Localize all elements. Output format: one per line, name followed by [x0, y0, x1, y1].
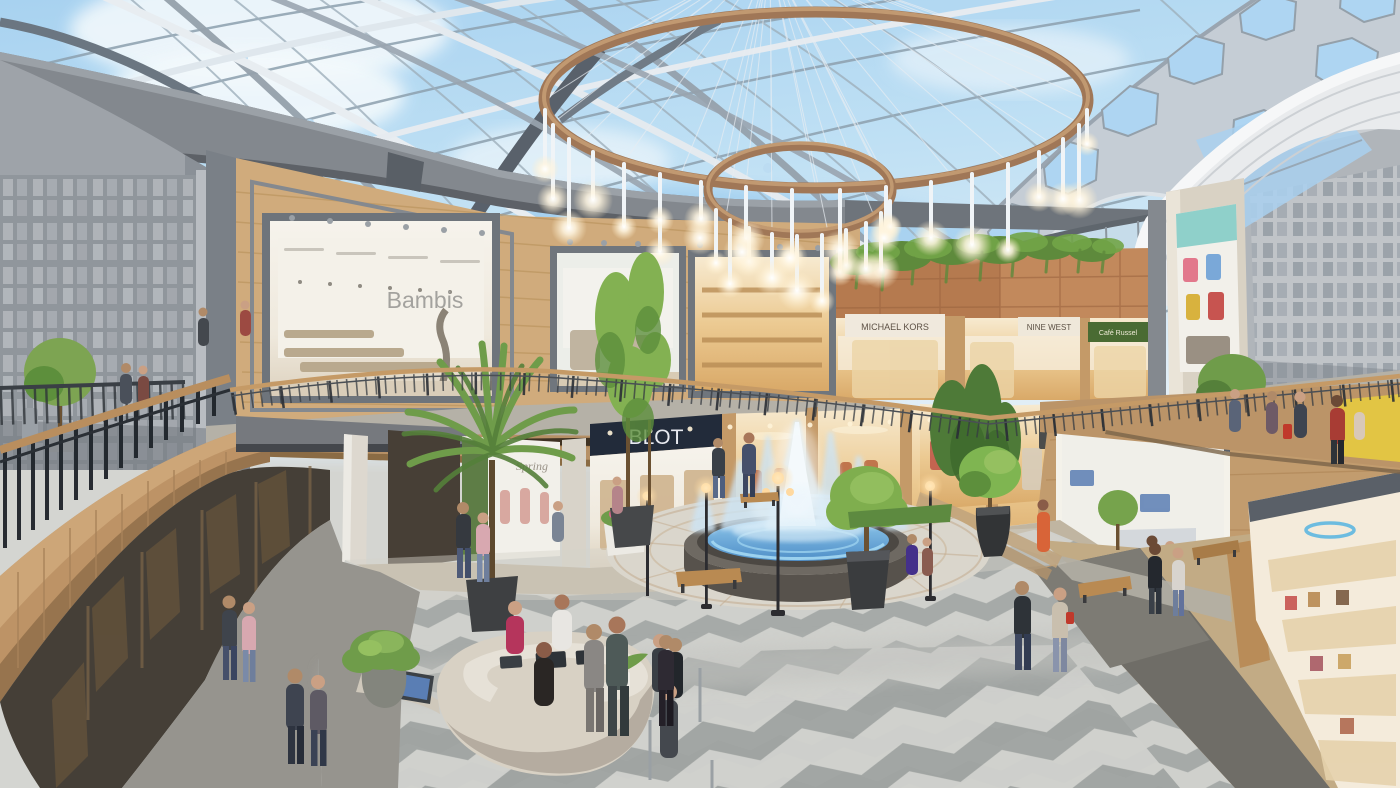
- svg-text:MICHAEL KORS: MICHAEL KORS: [861, 322, 929, 332]
- svg-text:Café Russel: Café Russel: [1099, 330, 1138, 337]
- svg-text:NINE WEST: NINE WEST: [1027, 323, 1072, 332]
- svg-text:Bambis: Bambis: [387, 287, 464, 313]
